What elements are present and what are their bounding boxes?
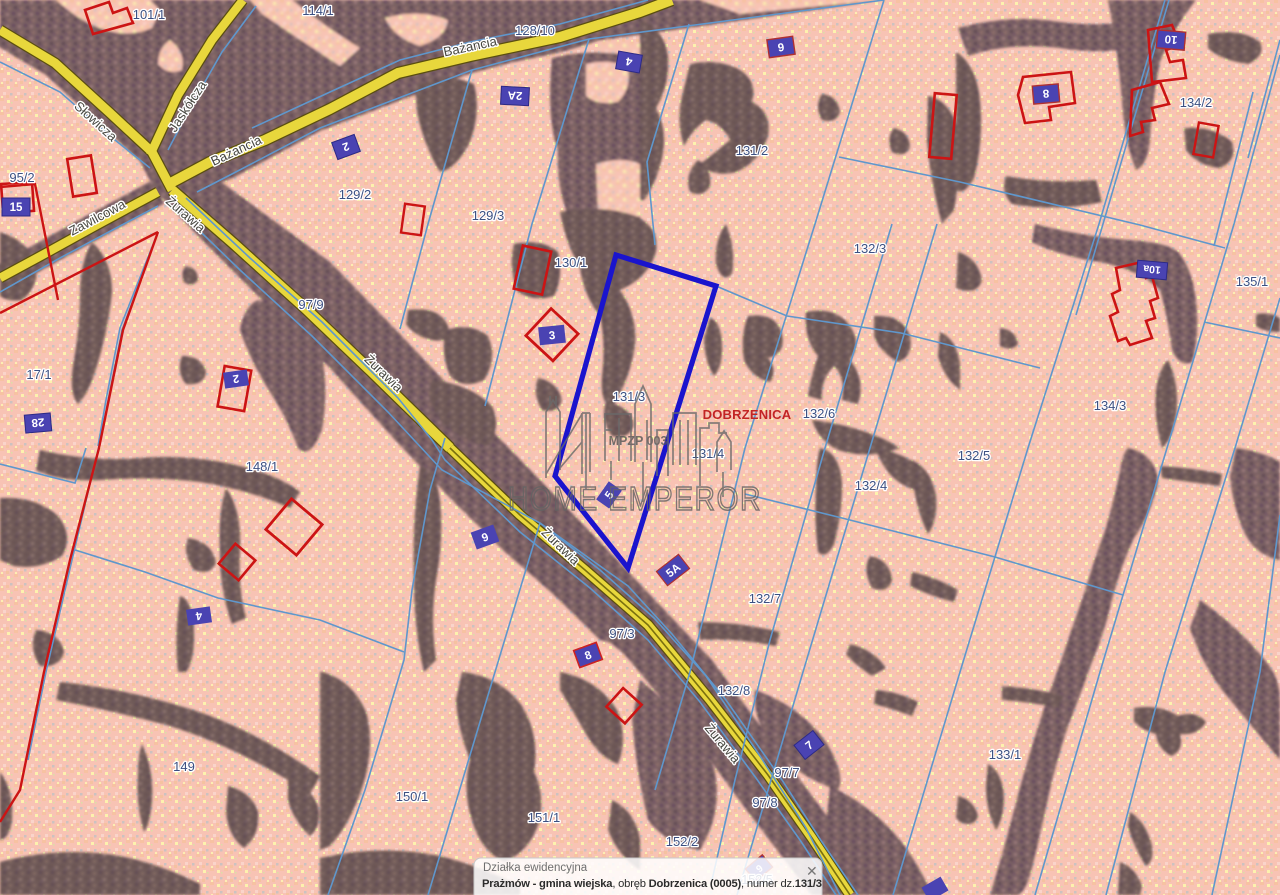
svg-text:28: 28 [30,415,44,428]
svg-text:128/10: 128/10 [515,23,555,38]
svg-text:97/9: 97/9 [298,297,323,312]
svg-text:129/3: 129/3 [472,208,505,223]
svg-text:133/1: 133/1 [989,747,1022,762]
svg-text:10a: 10a [1143,262,1162,275]
svg-text:Działka ewidencyjna: Działka ewidencyjna [483,862,588,874]
svg-text:135/1: 135/1 [1236,274,1269,289]
svg-text:95/2: 95/2 [9,170,34,185]
svg-text:132/7: 132/7 [749,591,782,606]
svg-text:Prażmów - gmina wiejska, obręb: Prażmów - gmina wiejska, obręb Dobrzenic… [482,878,822,890]
svg-text:114/1: 114/1 [302,3,334,18]
svg-text:HOME EMPEROR: HOME EMPEROR [508,481,762,518]
svg-text:152/2: 152/2 [666,834,699,849]
svg-text:151/1: 151/1 [528,810,561,825]
svg-text:132/8: 132/8 [718,683,751,698]
svg-text:132/4: 132/4 [855,478,888,493]
svg-text:DOBRZENICA: DOBRZENICA [703,407,792,422]
svg-text:132/5: 132/5 [958,448,991,463]
svg-text:✕: ✕ [806,863,818,879]
svg-text:97/7: 97/7 [774,765,799,780]
svg-text:132/6: 132/6 [803,406,836,421]
svg-text:3: 3 [548,330,556,343]
svg-text:97/3: 97/3 [609,626,634,641]
svg-text:132/3: 132/3 [854,241,887,256]
svg-text:15: 15 [10,202,23,214]
svg-text:129/2: 129/2 [339,187,372,202]
svg-text:134/3: 134/3 [1094,398,1127,413]
svg-text:149: 149 [173,759,195,774]
svg-text:101/1: 101/1 [133,7,166,22]
svg-text:134/2: 134/2 [1180,95,1213,110]
svg-text:148/1: 148/1 [246,459,279,474]
svg-text:130/1: 130/1 [555,255,588,270]
svg-text:2A: 2A [507,88,522,101]
svg-text:131/2: 131/2 [736,143,769,158]
svg-text:150/1: 150/1 [396,789,429,804]
svg-text:97/8: 97/8 [752,795,777,810]
svg-text:10: 10 [1164,32,1178,45]
svg-text:MPZP 003: MPZP 003 [609,434,668,448]
svg-text:17/1: 17/1 [26,367,51,382]
